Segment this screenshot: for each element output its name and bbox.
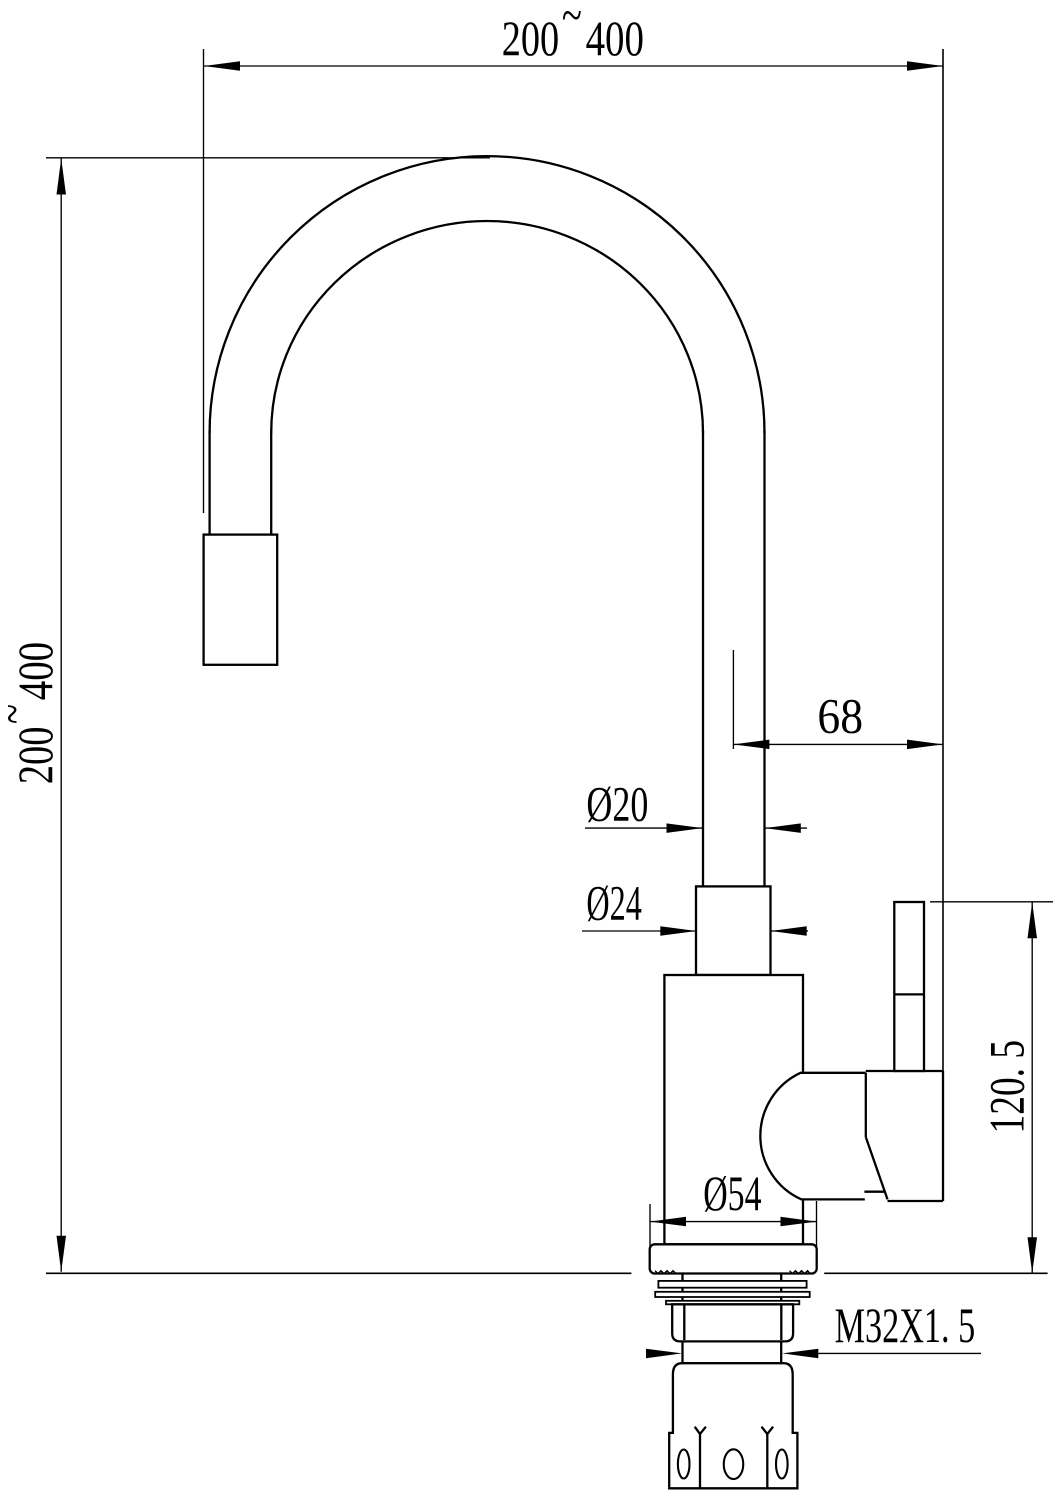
svg-text:68: 68 [817,688,863,744]
svg-text:Ø54: Ø54 [703,1165,761,1221]
svg-text:200: 200 [7,727,63,785]
svg-text:~: ~ [0,704,40,724]
svg-text:400: 400 [586,10,644,66]
svg-text:~: ~ [562,0,582,43]
svg-text:Ø24: Ø24 [586,875,641,931]
svg-text:400: 400 [7,642,63,700]
svg-text:Ø20: Ø20 [586,776,648,832]
svg-text:120. 5: 120. 5 [979,1040,1035,1134]
svg-text:200: 200 [502,10,560,66]
svg-text:M32X1. 5: M32X1. 5 [835,1297,976,1353]
